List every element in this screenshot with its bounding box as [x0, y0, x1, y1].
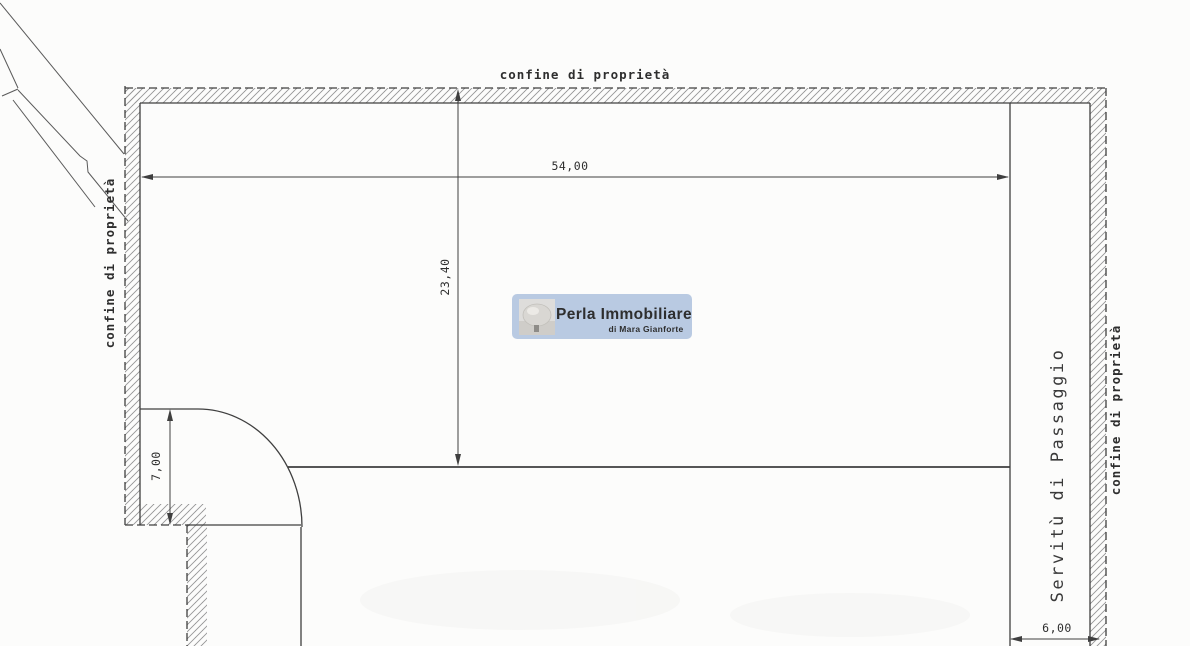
dimension-label-6: 6,00: [1042, 621, 1072, 635]
boundary-strip-top: [125, 88, 1106, 103]
structure-outline: [140, 409, 302, 646]
arrowhead-down: [455, 454, 461, 466]
road-edge-line: [0, 3, 124, 154]
property-boundary-dashed: [125, 86, 1106, 646]
dimension-23-40: 23,40: [438, 89, 461, 466]
label-boundary-left: confine di proprietà: [102, 178, 117, 349]
watermark-title: Perla Immobiliare: [556, 306, 692, 323]
watermark: Perla Immobiliare di Mara Gianforte: [512, 294, 692, 339]
road-edge-line: [13, 100, 95, 207]
dimension-label-7: 7,00: [149, 451, 163, 481]
boundary-strip-driveway: [187, 525, 207, 646]
dimension-6: 6,00: [1010, 621, 1100, 642]
road-edge-line: [0, 49, 18, 88]
label-servitude: Servitù di Passaggio: [1048, 348, 1068, 603]
arrowhead-up: [167, 409, 173, 421]
label-boundary-right: confine di proprietà: [1108, 325, 1123, 496]
scan-artifacts: [360, 570, 970, 637]
boundary-strip-bottom-left: [140, 504, 206, 525]
pearl-shell-detail: [534, 325, 539, 332]
label-boundary-top: confine di proprietà: [500, 67, 671, 82]
arrowhead-right: [997, 174, 1009, 180]
pearl-shape: [523, 304, 551, 326]
parcel-lines: [288, 103, 1010, 646]
road-edge-line: [2, 89, 18, 96]
arrowhead-left: [1010, 636, 1022, 642]
dimension-54: 54,00: [141, 159, 1009, 180]
property-boundary-solid: [140, 103, 1090, 646]
arrowhead-left: [141, 174, 153, 180]
boundary-hatching: [125, 88, 1106, 646]
boundary-strip-right: [1090, 88, 1106, 646]
pearl-photo-icon: [519, 299, 555, 335]
structure-corner-arc: [198, 409, 302, 527]
boundary-strip-left: [125, 88, 140, 525]
site-plan-document: 54,00 23,40 7,00 6,00 confine di proprie…: [0, 0, 1190, 646]
watermark-subtitle: di Mara Gianforte: [608, 324, 683, 334]
dimension-label-54: 54,00: [551, 159, 588, 173]
dimension-label-23-40: 23,40: [438, 258, 452, 295]
site-plan-drawing: 54,00 23,40 7,00 6,00 confine di proprie…: [0, 0, 1190, 646]
pearl-highlight: [527, 307, 539, 315]
